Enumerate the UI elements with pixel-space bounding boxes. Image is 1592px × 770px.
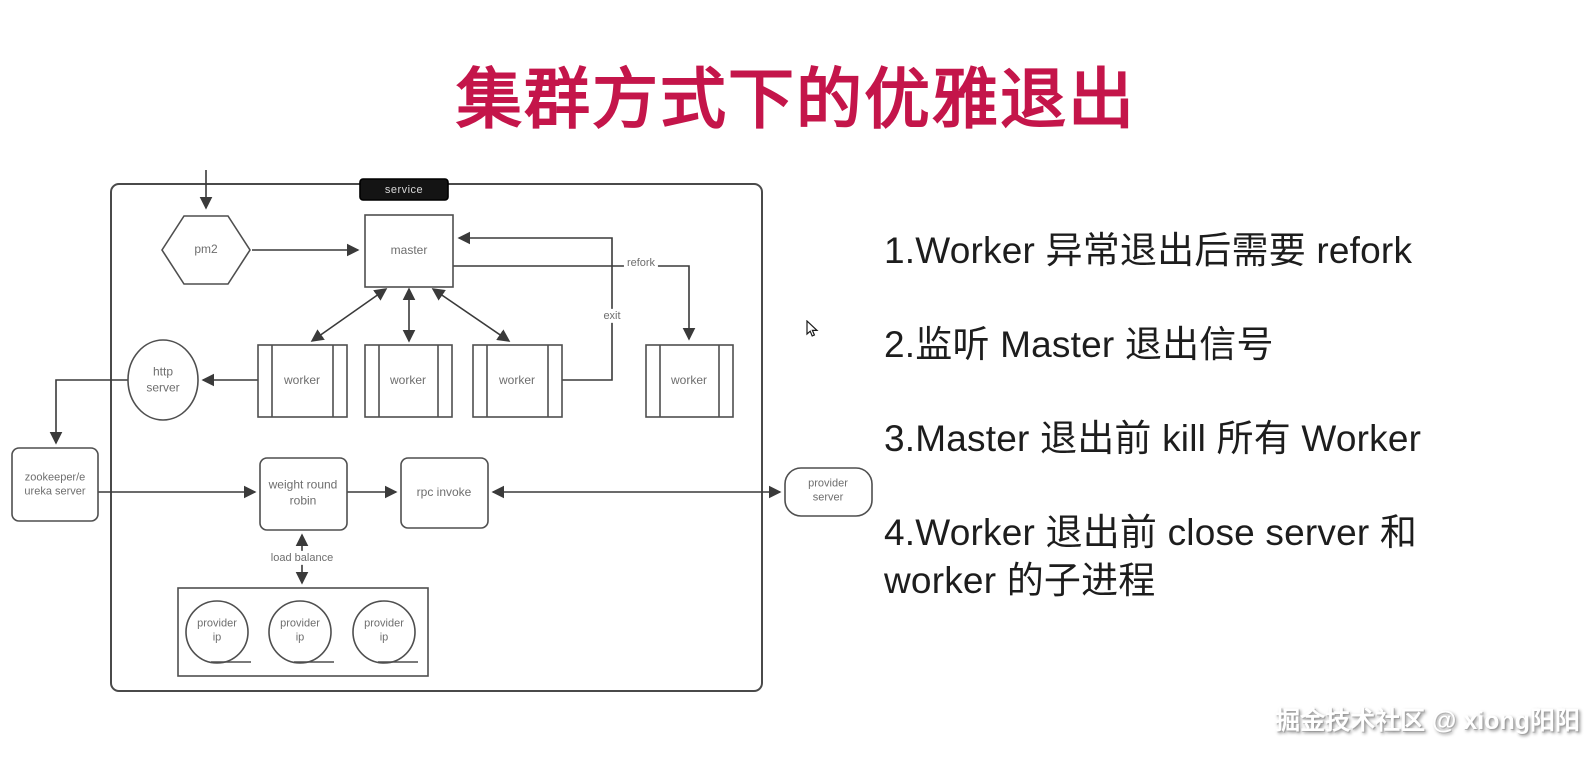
pm2-label: pm2 [194, 242, 217, 258]
provider-server-label-line2: server [808, 491, 848, 505]
note-item-3: 3.Master 退出前 kill 所有 Worker [884, 415, 1421, 463]
worker2-label: worker [390, 373, 426, 389]
zookeeper-label-line1: zookeeper/e [24, 471, 85, 485]
provider-ip3-line1: provider [364, 617, 404, 631]
master-label: master [391, 243, 428, 259]
load-balance-edge-label: load balance [268, 551, 336, 565]
weight-round-robin-label: weight round robin [269, 477, 338, 508]
slide: 集群方式下的优雅退出 [0, 0, 1592, 770]
wrr-label-line1: weight round [269, 477, 338, 493]
provider-ip2-line1: provider [280, 617, 320, 631]
rpc-invoke-label: rpc invoke [417, 485, 472, 501]
zookeeper-label-line2: ureka server [24, 485, 85, 499]
edge-master-worker3 [433, 289, 509, 341]
service-label: service [385, 183, 423, 197]
provider-server-label-line1: provider [808, 477, 848, 491]
edge-httpserver-to-zookeeper [56, 380, 128, 443]
provider-ip2-label: provider ip [280, 617, 320, 646]
provider-ip1-line2: ip [197, 631, 237, 645]
provider-ip1-line1: provider [197, 617, 237, 631]
edge-refork-master-to-worker4 [453, 266, 689, 339]
worker1-label: worker [284, 373, 320, 389]
provider-ip3-line2: ip [364, 631, 404, 645]
provider-server-label: provider server [808, 477, 848, 506]
watermark: 掘金技术社区 @ xiong阳阳 [1275, 701, 1580, 737]
http-server-label-line2: server [146, 380, 179, 396]
mouse-cursor-icon [805, 320, 821, 338]
provider-ip3-label: provider ip [364, 617, 404, 646]
worker4-label: worker [671, 373, 707, 389]
exit-edge-label: exit [600, 309, 623, 323]
http-server-label-line1: http [146, 364, 179, 380]
http-server-label: http server [146, 364, 179, 395]
worker3-label: worker [499, 373, 535, 389]
refork-edge-label: refork [624, 256, 658, 270]
provider-ip2-line2: ip [280, 631, 320, 645]
zookeeper-label: zookeeper/e ureka server [24, 471, 85, 500]
note-item-2: 2.监听 Master 退出信号 [884, 321, 1274, 369]
note-item-4: 4.Worker 退出前 close server 和 worker 的子进程 [884, 509, 1417, 605]
note-item-1: 1.Worker 异常退出后需要 refork [884, 227, 1412, 275]
provider-ip1-label: provider ip [197, 617, 237, 646]
cluster-architecture-diagram [0, 0, 1592, 770]
edge-master-worker1 [312, 289, 386, 341]
wrr-label-line2: robin [269, 493, 338, 509]
